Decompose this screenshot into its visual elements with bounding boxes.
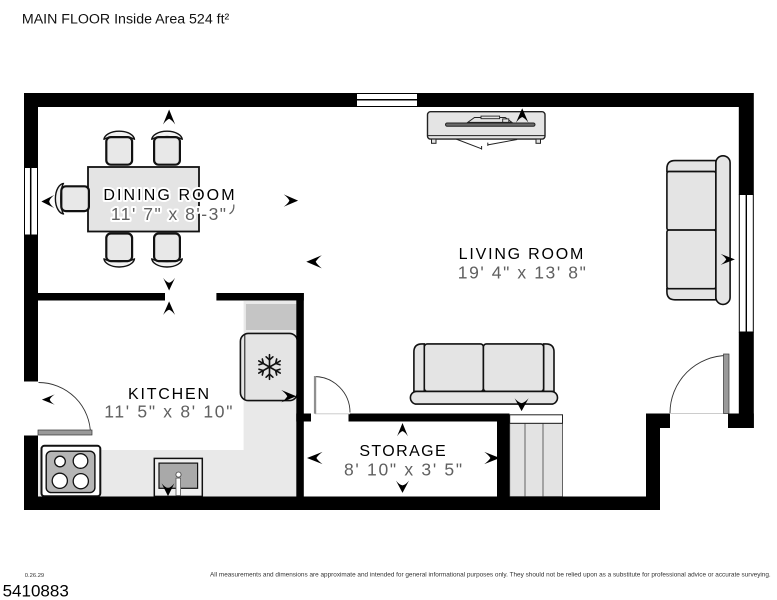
- svg-text:5410883: 5410883: [3, 582, 69, 600]
- svg-text:19' 4" x 13' 8": 19' 4" x 13' 8": [458, 263, 588, 283]
- svg-text:LIVING ROOM: LIVING ROOM: [459, 246, 585, 263]
- svg-text:8' 10" x 3' 5": 8' 10" x 3' 5": [344, 460, 464, 480]
- svg-text:DINING ROOM: DINING ROOM: [103, 187, 236, 204]
- svg-text:11' 7" x 8'-3": 11' 7" x 8'-3": [111, 204, 228, 224]
- svg-text:11' 5" x 8' 10": 11' 5" x 8' 10": [104, 402, 234, 422]
- svg-text:All measurements and dimension: All measurements and dimensions are appr…: [210, 572, 771, 579]
- svg-text:0.26.29: 0.26.29: [25, 573, 44, 579]
- svg-text:KITCHEN: KITCHEN: [128, 386, 211, 403]
- svg-text:MAIN FLOOR Inside Area 524 ft²: MAIN FLOOR Inside Area 524 ft²: [22, 12, 230, 28]
- svg-text:STORAGE: STORAGE: [359, 443, 447, 460]
